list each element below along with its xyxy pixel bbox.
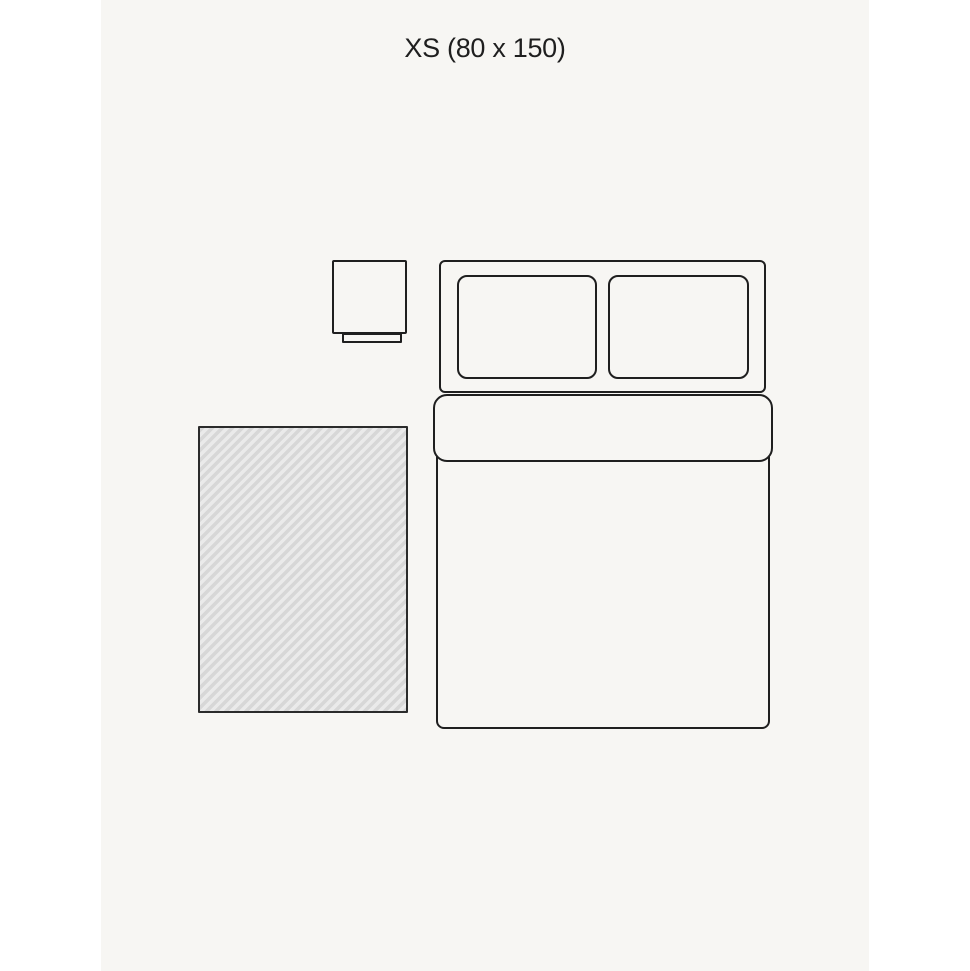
size-guide-page: XS (80 x 150) — [0, 0, 970, 971]
size-label: XS (80 x 150) — [101, 33, 869, 64]
nightstand-base-icon — [342, 333, 402, 343]
size-guide-canvas: XS (80 x 150) — [101, 0, 869, 971]
bed-body-icon — [436, 430, 770, 729]
nightstand-icon — [332, 260, 407, 334]
rug-icon — [198, 426, 408, 713]
bed-duvet-icon — [433, 394, 773, 462]
pillow-right-icon — [608, 275, 749, 379]
pillow-left-icon — [457, 275, 597, 379]
